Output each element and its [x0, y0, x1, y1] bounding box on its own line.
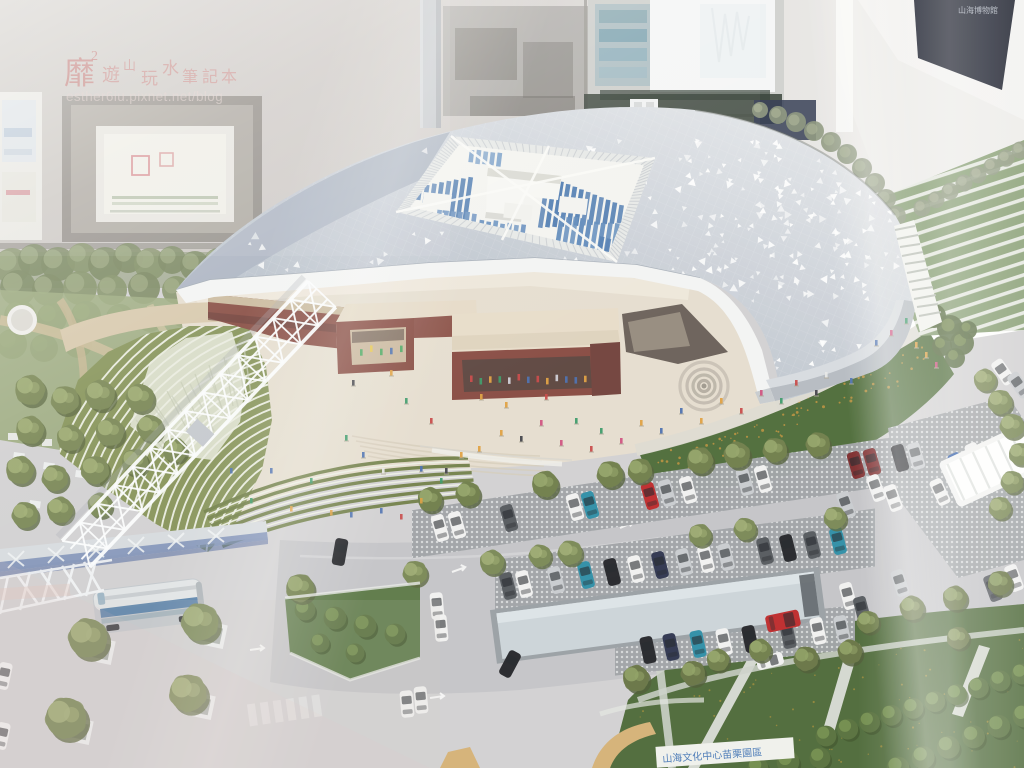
svg-text:山: 山 — [123, 58, 136, 73]
svg-text:esther6iu.pixnet.net/blog: esther6iu.pixnet.net/blog — [66, 89, 223, 104]
svg-text:玩: 玩 — [141, 69, 158, 88]
svg-text:筆: 筆 — [182, 68, 198, 86]
svg-text:記: 記 — [202, 68, 218, 86]
svg-text:本: 本 — [221, 68, 237, 86]
svg-text:遊: 遊 — [102, 65, 120, 85]
svg-text:水: 水 — [162, 59, 179, 78]
svg-text:2: 2 — [91, 49, 98, 64]
